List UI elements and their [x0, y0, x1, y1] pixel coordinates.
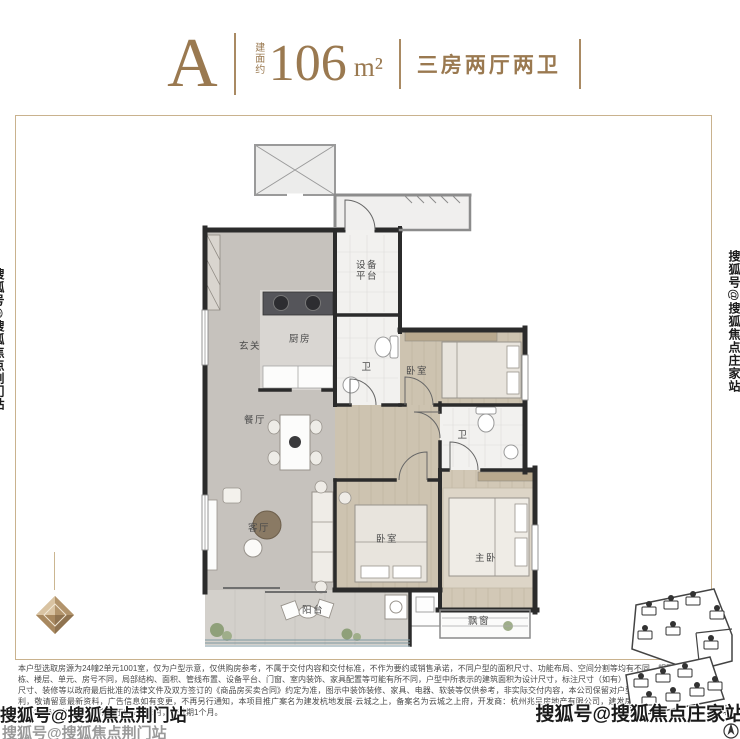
area-prefix-label: 建面约 [252, 42, 264, 86]
room-label-kitchen: 厨房 [275, 334, 325, 345]
room-label-bath-2: 卫 [451, 430, 475, 441]
room-label-living: 客厅 [234, 523, 284, 534]
floor-plan-drawing [195, 140, 545, 655]
unit-type-letter: A [167, 29, 218, 99]
elevator-icon [255, 145, 335, 195]
room-label-equipment-platform: 设备平台 [356, 260, 378, 282]
page: { "header": { "unit": "A", "area_label":… [0, 0, 740, 739]
area-value: 106 [269, 38, 347, 90]
watermark-right-edge: 搜狐号@搜狐焦点庄家站 [726, 250, 740, 393]
header-divider [399, 39, 401, 89]
watermark-bottom-right: 搜狐号@搜狐焦点庄家站 [535, 699, 740, 726]
area-unit: m² [354, 52, 383, 83]
gem-icon [33, 593, 77, 642]
watermark-bottom-left: 搜狐号@搜狐焦点荆门站 [0, 701, 187, 726]
layout-description: 三房两厅两卫 [417, 49, 561, 79]
room-label-bedroom-1: 卧室 [392, 366, 442, 377]
gem-decor-line [54, 552, 55, 590]
floor-plan: 玄关 厨房 设备平台 卫 餐厅 卧室 卫 客厅 卧室 主卧 阳台 飘窗 [195, 140, 545, 655]
room-label-bay-window: 飘窗 [454, 616, 504, 627]
room-label-master-bedroom: 主卧 [461, 553, 511, 564]
header-divider [579, 39, 581, 89]
room-label-bedroom-2: 卧室 [362, 534, 412, 545]
watermark-left-edge: 搜狐号@搜狐焦点荆门站 [0, 268, 7, 411]
area-group: 建面约 106 m² [252, 38, 383, 90]
room-label-dining: 餐厅 [237, 415, 273, 426]
plan-header: A 建面约 106 m² 三房两厅两卫 [12, 22, 740, 106]
room-label-foyer: 玄关 [225, 341, 275, 352]
room-label-bath-1: 卫 [355, 362, 379, 373]
room-label-balcony: 阳台 [288, 605, 338, 616]
header-divider [234, 33, 236, 95]
